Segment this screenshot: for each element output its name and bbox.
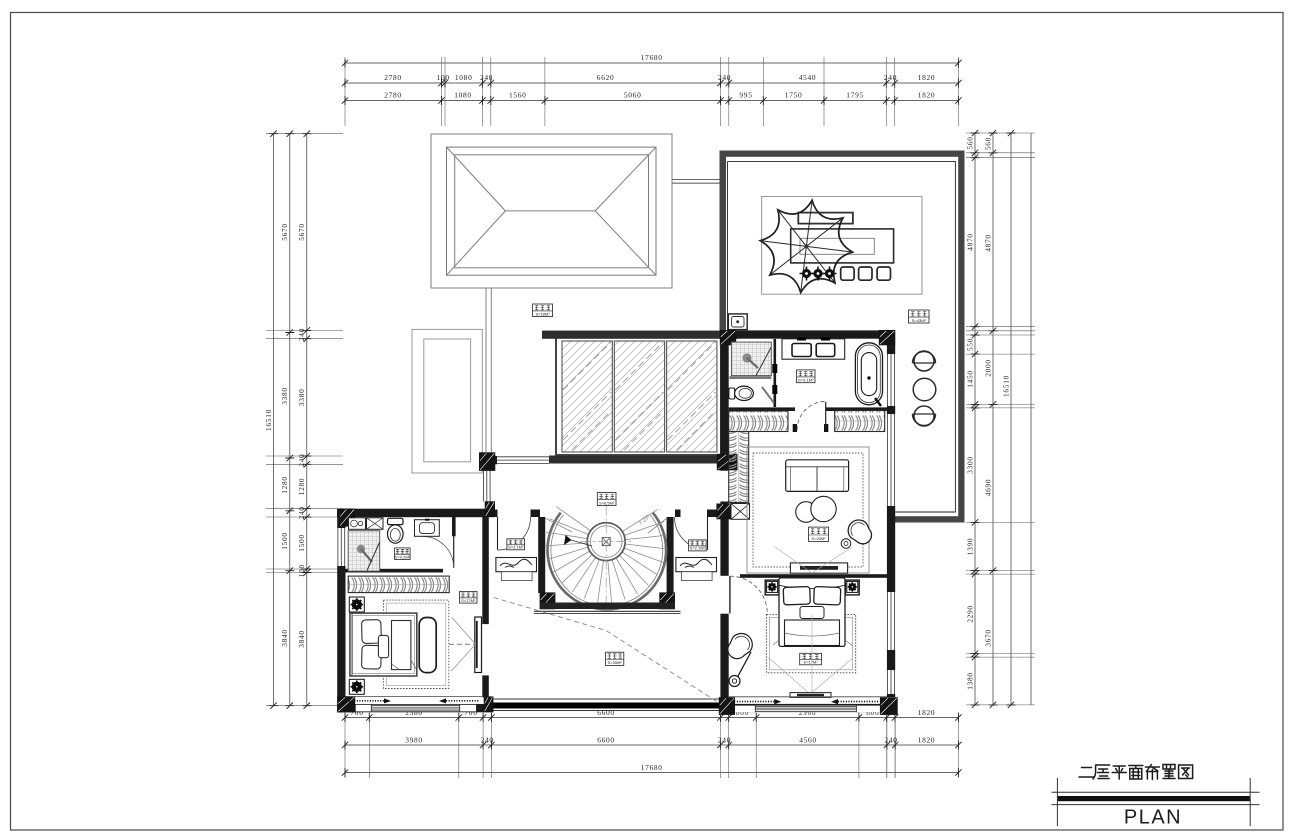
svg-text:1560: 1560 bbox=[509, 91, 527, 100]
svg-text:PLAN: PLAN bbox=[1124, 807, 1182, 829]
svg-text:5060: 5060 bbox=[624, 91, 642, 100]
svg-text:2780: 2780 bbox=[384, 91, 402, 100]
svg-text:2290: 2290 bbox=[966, 605, 975, 623]
svg-text:S=17M²: S=17M² bbox=[461, 598, 476, 603]
svg-text:1820: 1820 bbox=[918, 735, 936, 744]
svg-text:100: 100 bbox=[297, 564, 306, 577]
svg-text:1080: 1080 bbox=[454, 91, 472, 100]
svg-text:3300: 3300 bbox=[966, 456, 975, 474]
svg-text:1280: 1280 bbox=[297, 478, 306, 496]
svg-text:1280: 1280 bbox=[280, 476, 289, 494]
svg-text:3380: 3380 bbox=[280, 387, 289, 405]
svg-text:S=4.2M²: S=4.2M² bbox=[395, 554, 411, 559]
svg-text:995: 995 bbox=[739, 91, 752, 100]
svg-text:240: 240 bbox=[884, 73, 897, 82]
svg-text:1750: 1750 bbox=[785, 91, 803, 100]
svg-text:2000: 2000 bbox=[984, 359, 993, 377]
svg-text:S=2.1M²: S=2.1M² bbox=[508, 545, 524, 550]
svg-text:1390: 1390 bbox=[966, 538, 975, 556]
svg-text:560: 560 bbox=[984, 137, 993, 150]
svg-text:5670: 5670 bbox=[297, 223, 306, 241]
svg-text:6600: 6600 bbox=[597, 735, 615, 744]
svg-text:6600: 6600 bbox=[597, 708, 615, 717]
svg-text:3980: 3980 bbox=[405, 735, 423, 744]
svg-text:240: 240 bbox=[297, 506, 306, 519]
svg-text:3670: 3670 bbox=[984, 629, 993, 647]
svg-text:550: 550 bbox=[966, 338, 975, 351]
svg-text:1795: 1795 bbox=[846, 91, 864, 100]
svg-text:560: 560 bbox=[966, 136, 975, 149]
svg-text:4870: 4870 bbox=[966, 233, 975, 251]
svg-text:240: 240 bbox=[297, 454, 306, 467]
svg-text:3840: 3840 bbox=[280, 629, 289, 647]
svg-text:S=20M²: S=20M² bbox=[811, 536, 826, 541]
svg-text:S=9.1M²: S=9.1M² bbox=[798, 378, 814, 383]
svg-text:S=35M²: S=35M² bbox=[608, 660, 623, 665]
svg-text:3380: 3380 bbox=[297, 389, 306, 407]
svg-text:6620: 6620 bbox=[597, 73, 615, 82]
svg-text:S=18M²: S=18M² bbox=[535, 311, 550, 316]
svg-text:1820: 1820 bbox=[918, 708, 936, 717]
svg-text:3840: 3840 bbox=[297, 630, 306, 648]
svg-text:S=17M²: S=17M² bbox=[804, 660, 819, 665]
svg-text:S=8.5M²: S=8.5M² bbox=[599, 500, 615, 505]
svg-text:17680: 17680 bbox=[641, 763, 663, 772]
svg-text:S=43M²: S=43M² bbox=[912, 318, 927, 323]
svg-text:4690: 4690 bbox=[984, 479, 993, 497]
svg-text:240: 240 bbox=[480, 73, 493, 82]
svg-text:240: 240 bbox=[884, 735, 897, 744]
svg-text:240: 240 bbox=[718, 735, 731, 744]
svg-text:4560: 4560 bbox=[799, 735, 817, 744]
svg-text:16510: 16510 bbox=[1002, 375, 1011, 397]
svg-text:1380: 1380 bbox=[966, 672, 975, 690]
svg-text:1500: 1500 bbox=[297, 534, 306, 552]
svg-text:4540: 4540 bbox=[799, 73, 817, 82]
svg-text:240: 240 bbox=[481, 735, 494, 744]
svg-text:1820: 1820 bbox=[918, 91, 936, 100]
svg-text:1500: 1500 bbox=[280, 532, 289, 550]
svg-text:1450: 1450 bbox=[966, 370, 975, 388]
svg-text:1820: 1820 bbox=[918, 73, 936, 82]
svg-text:100: 100 bbox=[437, 73, 450, 82]
svg-text:5670: 5670 bbox=[280, 223, 289, 241]
svg-text:1080: 1080 bbox=[455, 73, 473, 82]
svg-text:2780: 2780 bbox=[384, 73, 402, 82]
svg-text:240: 240 bbox=[718, 73, 731, 82]
svg-text:S=2.1M²: S=2.1M² bbox=[690, 546, 706, 551]
svg-text:4870: 4870 bbox=[984, 234, 993, 252]
svg-text:17680: 17680 bbox=[641, 53, 663, 62]
svg-text:16510: 16510 bbox=[264, 409, 273, 431]
svg-text:240: 240 bbox=[297, 328, 306, 341]
